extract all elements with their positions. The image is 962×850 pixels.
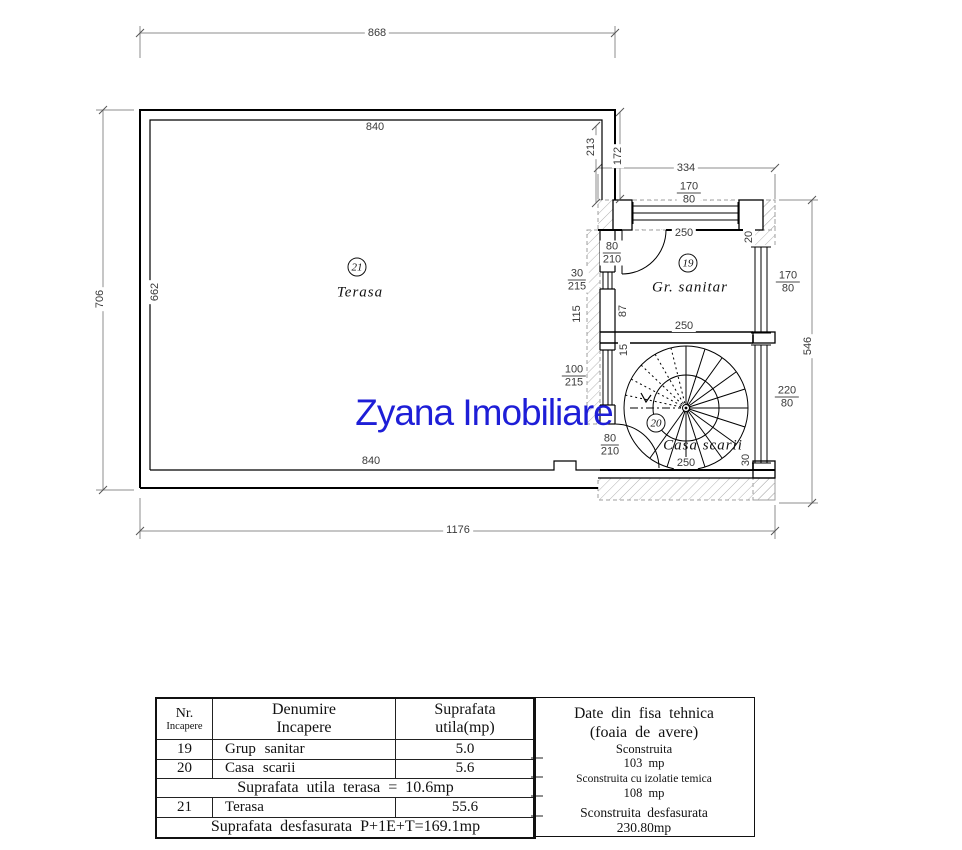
window-width: 100: [562, 364, 586, 377]
table-row-terasa-subtotal: Suprafata utila terasa = 10.6mp: [156, 778, 535, 797]
dim-overall-width: 868: [365, 27, 389, 39]
dim-wall-115: 115: [571, 302, 583, 326]
dim-wall-87: 87: [617, 302, 629, 320]
dim-sanitar-width: 250: [672, 320, 696, 332]
dim-notch-213: 213: [585, 135, 597, 159]
table-row: 21 Terasa 55.6: [156, 797, 535, 817]
row-19-area: 5.0: [396, 739, 536, 759]
dim-notch-172: 172: [612, 144, 624, 168]
row-19-name: Grup sanitar: [213, 739, 396, 759]
dim-terasa-width-bottom: 840: [359, 455, 383, 467]
header-suprafata-line2: utila(mp): [396, 719, 534, 737]
header-denumire-line1: Denumire: [213, 701, 395, 719]
window-width: 30: [568, 268, 586, 281]
row-20-nr: 20: [156, 759, 213, 778]
dim-pier-15: 15: [618, 341, 630, 359]
window-height: 80: [778, 398, 796, 410]
dim-terasa-height: 662: [149, 280, 161, 304]
row-19-nr: 19: [156, 739, 213, 759]
window-spec-left-small: 30 215: [565, 268, 589, 293]
header-incapere-small: Incapere: [157, 721, 212, 732]
room-label-gr-sanitar: Gr. sanitar: [652, 280, 728, 297]
dim-bottom-total-width: 1176: [443, 524, 473, 536]
tech-item3-value: 230.80mp: [617, 820, 671, 835]
door-sanitar: [622, 230, 666, 274]
header-suprafata-line1: Suprafata: [396, 701, 534, 719]
dim-annex-height: 546: [802, 334, 814, 358]
tech-title-line2: (foaia de avere): [590, 723, 698, 742]
door-height: 210: [598, 446, 622, 458]
row-21-nr: 21: [156, 797, 213, 817]
window-height: 80: [779, 283, 797, 295]
door-spec-sanitar: 80 210: [600, 241, 624, 266]
header-nr: Nr.: [157, 706, 212, 721]
row-21-area: 55.6: [396, 797, 536, 817]
tech-item2-label: Sconstruita cu izolatie temica: [576, 772, 712, 786]
tech-item1-value: 103 mp: [624, 756, 665, 770]
table-row: 20 Casa scarii 5.6: [156, 759, 535, 778]
room-number-terasa: 21: [348, 258, 367, 277]
door-spec-scara: 80 210: [598, 433, 622, 458]
window-spec-right-scara: 220 80: [775, 385, 799, 410]
tech-item2-value: 108 mp: [624, 786, 665, 800]
header-suprafata: Suprafata utila(mp): [396, 698, 536, 739]
row-20-name: Casa scarii: [213, 759, 396, 778]
dim-terasa-width-top: 840: [363, 121, 387, 133]
dim-total-height: 706: [94, 287, 106, 311]
window-width: 170: [776, 270, 800, 283]
floor-plan-page: 868 840 213 172 334 250 20 115 87 250 15…: [0, 0, 962, 850]
tech-item3-label: Sconstruita desfasurata: [580, 805, 708, 820]
terasa-subtotal-note: Suprafata utila terasa = 10.6mp: [156, 778, 535, 797]
room-label-terasa: Terasa: [337, 285, 383, 302]
window-width: 170: [677, 181, 701, 194]
room-label-casa-scarii: Casa scarii: [663, 438, 743, 455]
dim-pier-20: 20: [743, 228, 755, 246]
legend-table: Nr. Incapere Denumire Incapere Suprafata…: [155, 697, 536, 839]
legend-header-row: Nr. Incapere Denumire Incapere Suprafata…: [156, 698, 535, 739]
watermark-zyana-imobiliare: Zyana Imobiliare: [355, 392, 613, 434]
dim-win-top-width: 250: [672, 227, 696, 239]
window-spec-left-large: 100 215: [562, 364, 586, 389]
dim-annex-width: 334: [674, 162, 698, 174]
header-denumire-line2: Incapere: [213, 719, 395, 737]
window-spec-right-sanitar: 170 80: [776, 270, 800, 295]
total-note: Suprafata desfasurata P+1E+T=169.1mp: [156, 817, 535, 838]
door-width: 80: [601, 433, 619, 446]
header-denumire: Denumire Incapere: [213, 698, 396, 739]
table-row-total: Suprafata desfasurata P+1E+T=169.1mp: [156, 817, 535, 838]
window-left-small: [603, 272, 612, 289]
window-height: 80: [680, 194, 698, 206]
dim-scara-width: 250: [674, 457, 698, 469]
window-spec-annex-top: 170 80: [677, 181, 701, 206]
room-number-casa-scarii: 20: [647, 414, 666, 433]
row-21-name: Terasa: [213, 797, 396, 817]
window-height: 215: [562, 377, 586, 389]
room-number-gr-sanitar: 19: [679, 254, 698, 273]
tech-item1-label: Sconstruita: [616, 742, 672, 756]
window-width: 220: [775, 385, 799, 398]
header-nr-incapere: Nr. Incapere: [156, 698, 213, 739]
door-width: 80: [603, 241, 621, 254]
door-height: 210: [600, 254, 624, 266]
tech-title-line1: Date din fisa tehnica: [574, 704, 714, 723]
table-row: 19 Grup sanitar 5.0: [156, 739, 535, 759]
row-20-area: 5.6: [396, 759, 536, 778]
window-height: 215: [565, 281, 589, 293]
tech-data-panel: Date din fisa tehnica (foaia de avere) S…: [533, 697, 755, 837]
